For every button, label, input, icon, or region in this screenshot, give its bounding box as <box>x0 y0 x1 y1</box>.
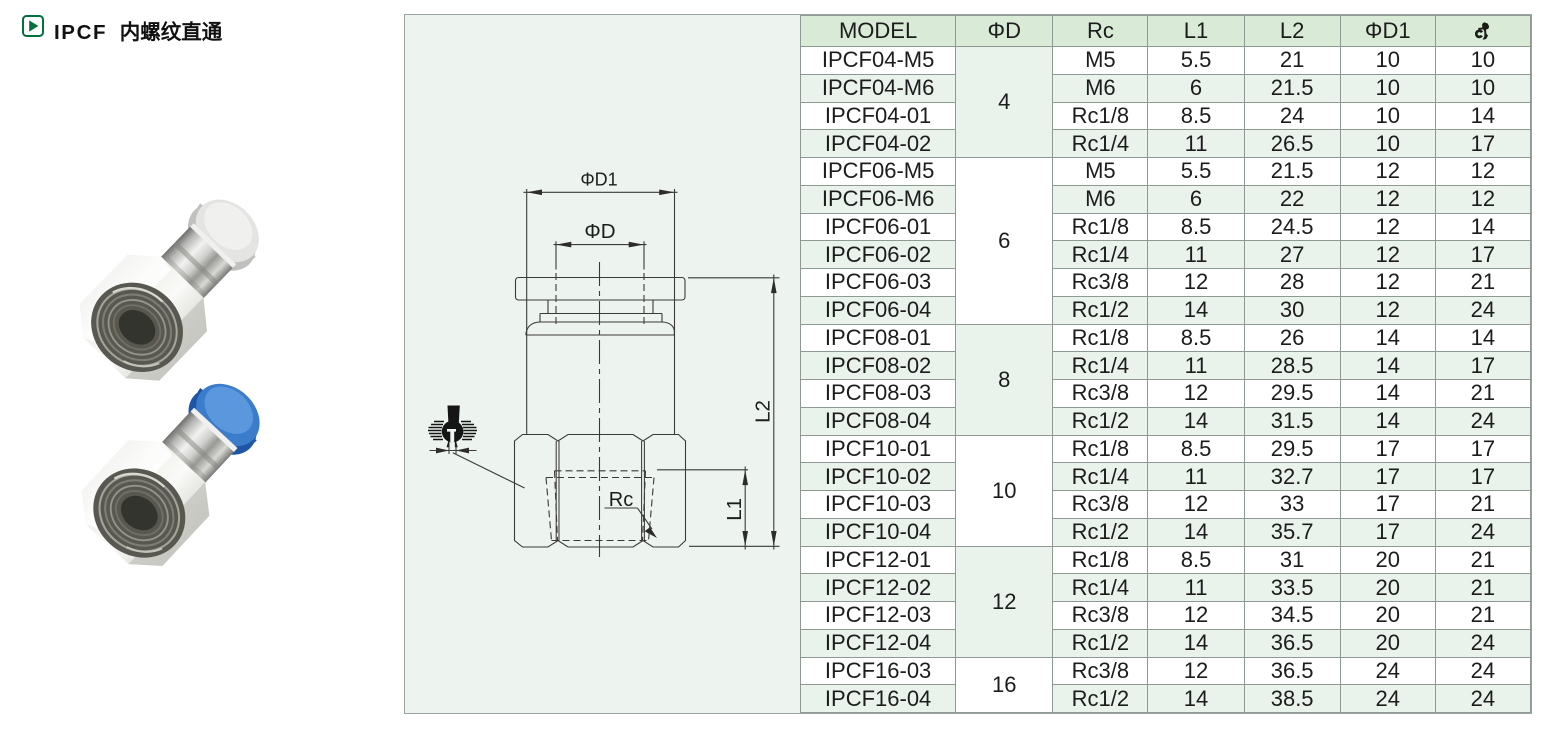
svg-text:L1: L1 <box>723 498 746 521</box>
svg-text:L2: L2 <box>752 400 775 423</box>
svg-text:ΦD: ΦD <box>584 220 615 243</box>
svg-text:ΦD1: ΦD1 <box>580 170 617 190</box>
svg-text:Rc: Rc <box>609 489 633 511</box>
